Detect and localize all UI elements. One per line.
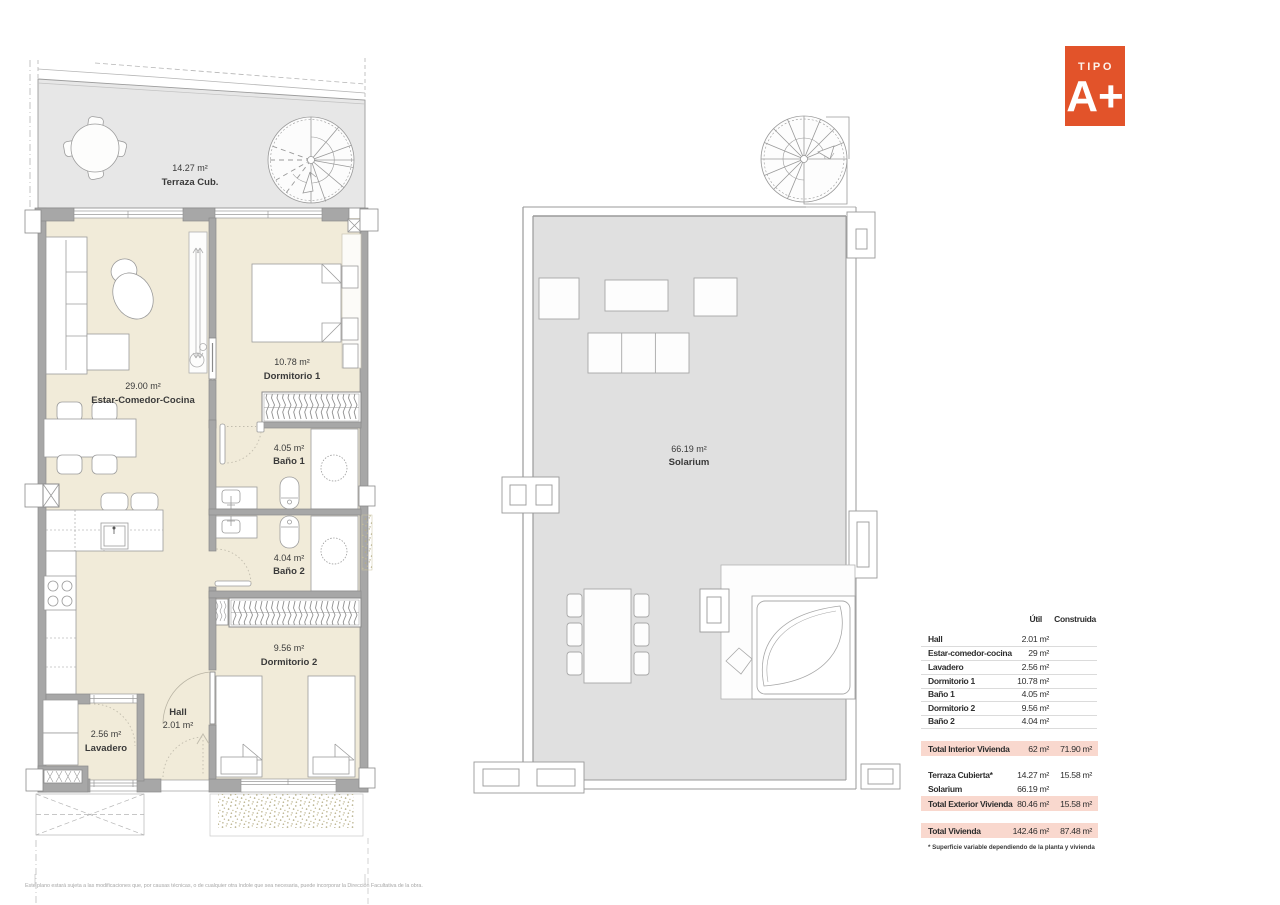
svg-text:* Superficie variable dependie: * Superficie variable dependiendo de la … — [928, 844, 1095, 851]
svg-text:4.05 m²: 4.05 m² — [274, 443, 305, 453]
svg-text:87.48 m²: 87.48 m² — [1060, 826, 1092, 836]
svg-text:4.04 m²: 4.04 m² — [1022, 716, 1050, 726]
svg-text:A+: A+ — [1066, 72, 1123, 121]
svg-text:80.46 m²: 80.46 m² — [1017, 799, 1049, 809]
svg-text:9.56 m²: 9.56 m² — [1022, 703, 1050, 713]
svg-text:Este plano estará sujeta a las: Este plano estará sujeta a las modificac… — [25, 883, 423, 889]
svg-text:2.56 m²: 2.56 m² — [1022, 662, 1050, 672]
svg-text:Baño 2: Baño 2 — [928, 716, 955, 726]
svg-text:29.00 m²: 29.00 m² — [125, 381, 161, 391]
svg-text:Lavadero: Lavadero — [928, 662, 964, 672]
svg-text:66.19 m²: 66.19 m² — [1017, 784, 1049, 794]
svg-text:4.05 m²: 4.05 m² — [1022, 689, 1050, 699]
svg-text:2.56 m²: 2.56 m² — [91, 729, 122, 739]
svg-text:14.27 m²: 14.27 m² — [1017, 770, 1049, 780]
svg-text:10.78 m²: 10.78 m² — [1017, 676, 1049, 686]
svg-text:Dormitorio 1: Dormitorio 1 — [264, 371, 321, 382]
svg-text:Total Exterior Vivienda: Total Exterior Vivienda — [928, 799, 1013, 809]
svg-text:Terraza Cubierta*: Terraza Cubierta* — [928, 770, 994, 780]
svg-text:71.90 m²: 71.90 m² — [1060, 744, 1092, 754]
svg-text:Solarium: Solarium — [669, 457, 710, 468]
svg-text:Solarium: Solarium — [928, 784, 963, 794]
svg-text:Hall: Hall — [928, 634, 942, 644]
svg-text:15.58 m²: 15.58 m² — [1060, 770, 1092, 780]
svg-text:Baño 2: Baño 2 — [273, 566, 305, 577]
svg-text:Dormitorio 1: Dormitorio 1 — [928, 676, 976, 686]
svg-text:10.78 m²: 10.78 m² — [274, 357, 310, 367]
svg-text:Lavadero: Lavadero — [85, 743, 127, 754]
svg-text:4.04 m²: 4.04 m² — [274, 553, 305, 563]
svg-text:9.56 m²: 9.56 m² — [274, 643, 305, 653]
svg-text:Baño 1: Baño 1 — [273, 456, 305, 467]
svg-text:14.27 m²: 14.27 m² — [172, 163, 208, 173]
svg-text:66.19 m²: 66.19 m² — [671, 444, 707, 454]
svg-text:2.01 m²: 2.01 m² — [163, 720, 194, 730]
svg-text:Dormitorio 2: Dormitorio 2 — [261, 657, 317, 668]
svg-text:Estar-comedor-cocina: Estar-comedor-cocina — [928, 648, 1012, 658]
svg-text:Hall: Hall — [169, 707, 186, 718]
svg-text:15.58 m²: 15.58 m² — [1060, 799, 1092, 809]
svg-text:Estar-Comedor-Cocina: Estar-Comedor-Cocina — [91, 395, 195, 406]
svg-text:142.46 m²: 142.46 m² — [1013, 826, 1050, 836]
svg-text:Total Interior Vivienda: Total Interior Vivienda — [928, 744, 1010, 754]
svg-text:62 m²: 62 m² — [1028, 744, 1049, 754]
svg-text:Dormitorio 2: Dormitorio 2 — [928, 703, 976, 713]
svg-text:Útil: Útil — [1030, 613, 1043, 624]
svg-text:Total Vivienda: Total Vivienda — [928, 826, 981, 836]
svg-text:2.01 m²: 2.01 m² — [1022, 634, 1050, 644]
svg-text:29 m²: 29 m² — [1028, 648, 1049, 658]
svg-text:Terraza Cub.: Terraza Cub. — [162, 177, 219, 188]
svg-text:Baño 1: Baño 1 — [928, 689, 955, 699]
svg-text:Construida: Construida — [1054, 614, 1096, 624]
